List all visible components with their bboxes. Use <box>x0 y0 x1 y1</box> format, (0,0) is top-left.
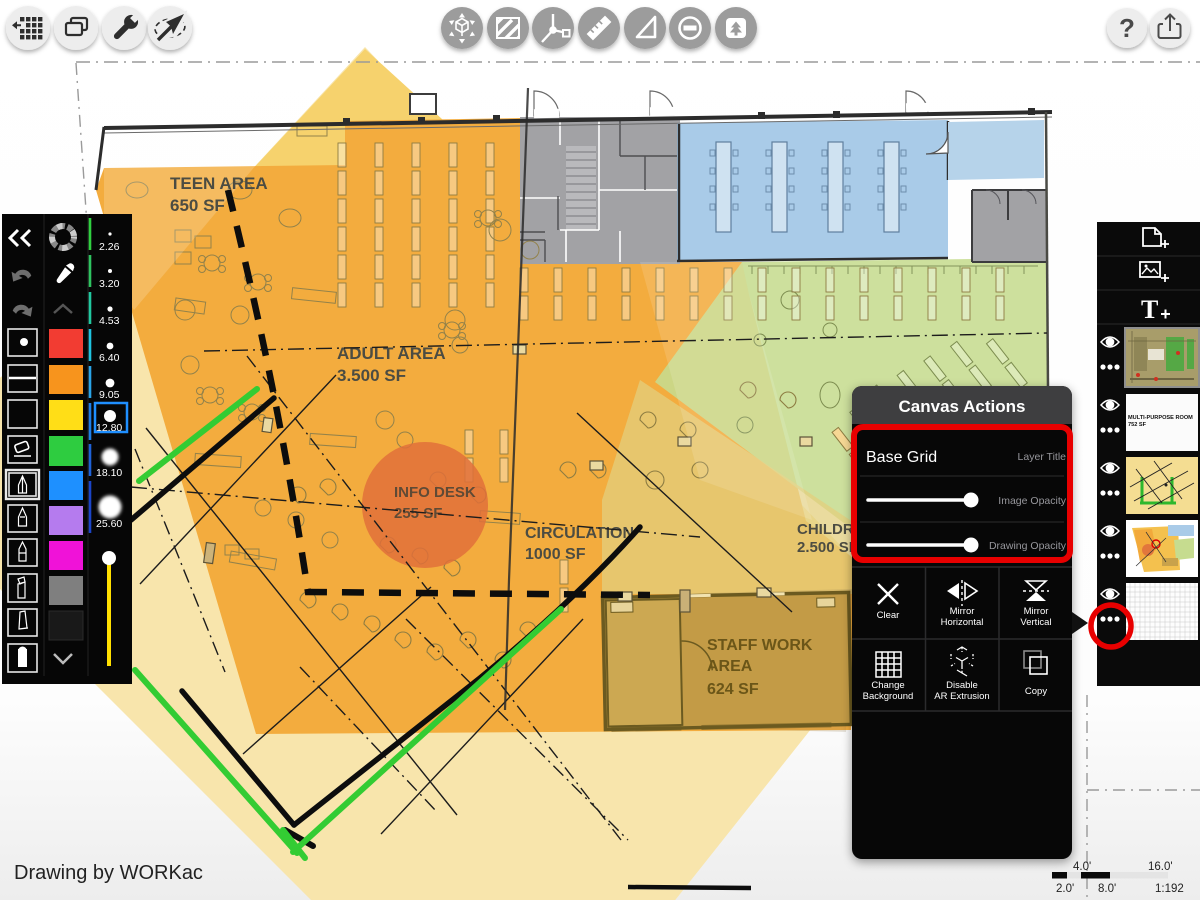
svg-text:18.10: 18.10 <box>96 467 122 479</box>
svg-text:Drawing Opacity: Drawing Opacity <box>989 540 1067 552</box>
svg-text:?: ? <box>1119 13 1135 43</box>
svg-text:Drawing by WORKac: Drawing by WORKac <box>14 862 203 884</box>
svg-text:1000 SF: 1000 SF <box>525 546 586 563</box>
svg-text:8.0': 8.0' <box>1098 883 1116 895</box>
svg-text:AREA: AREA <box>707 658 753 675</box>
svg-text:Horizontal: Horizontal <box>941 617 984 628</box>
svg-text:12.80: 12.80 <box>96 422 122 434</box>
svg-text:T: T <box>1141 295 1158 324</box>
svg-text:6.40: 6.40 <box>99 352 120 364</box>
svg-text:3.500 SF: 3.500 SF <box>337 366 406 385</box>
svg-text:650 SF: 650 SF <box>170 196 225 215</box>
svg-text:AR Extrusion: AR Extrusion <box>934 691 989 702</box>
svg-text:2.0': 2.0' <box>1056 883 1074 895</box>
svg-text:Copy: Copy <box>1025 686 1047 697</box>
svg-text:Base Grid: Base Grid <box>866 449 937 466</box>
svg-text:Canvas Actions: Canvas Actions <box>899 397 1026 416</box>
svg-text:624 SF: 624 SF <box>707 681 759 698</box>
svg-text:255 SF: 255 SF <box>394 505 442 522</box>
svg-text:4.0': 4.0' <box>1073 861 1091 873</box>
svg-text:3.20: 3.20 <box>99 278 120 290</box>
svg-text:Clear: Clear <box>877 610 900 621</box>
svg-text:Disable: Disable <box>946 680 978 691</box>
svg-text:25.60: 25.60 <box>96 518 122 530</box>
svg-text:Image Opacity: Image Opacity <box>998 495 1066 507</box>
svg-text:2.26: 2.26 <box>99 241 120 253</box>
svg-text:MULTI-PURPOSE ROOM: MULTI-PURPOSE ROOM <box>1128 415 1193 421</box>
svg-text:Mirror: Mirror <box>950 606 975 617</box>
svg-text:16.0': 16.0' <box>1148 861 1173 873</box>
svg-text:1:192: 1:192 <box>1155 883 1184 895</box>
svg-text:Mirror: Mirror <box>1024 606 1049 617</box>
svg-text:STAFF WORK: STAFF WORK <box>707 637 813 654</box>
svg-text:Background: Background <box>863 691 914 702</box>
svg-text:Vertical: Vertical <box>1020 617 1051 628</box>
svg-text:CIRCULATION: CIRCULATION <box>525 525 634 542</box>
svg-text:TEEN AREA: TEEN AREA <box>170 174 268 193</box>
svg-text:9.05: 9.05 <box>99 389 120 401</box>
svg-text:INFO DESK: INFO DESK <box>394 484 476 501</box>
svg-text:4.53: 4.53 <box>99 315 120 327</box>
svg-text:Layer Title: Layer Title <box>1018 451 1067 463</box>
svg-text:Change: Change <box>871 680 904 691</box>
svg-text:752 SF: 752 SF <box>1128 422 1147 428</box>
